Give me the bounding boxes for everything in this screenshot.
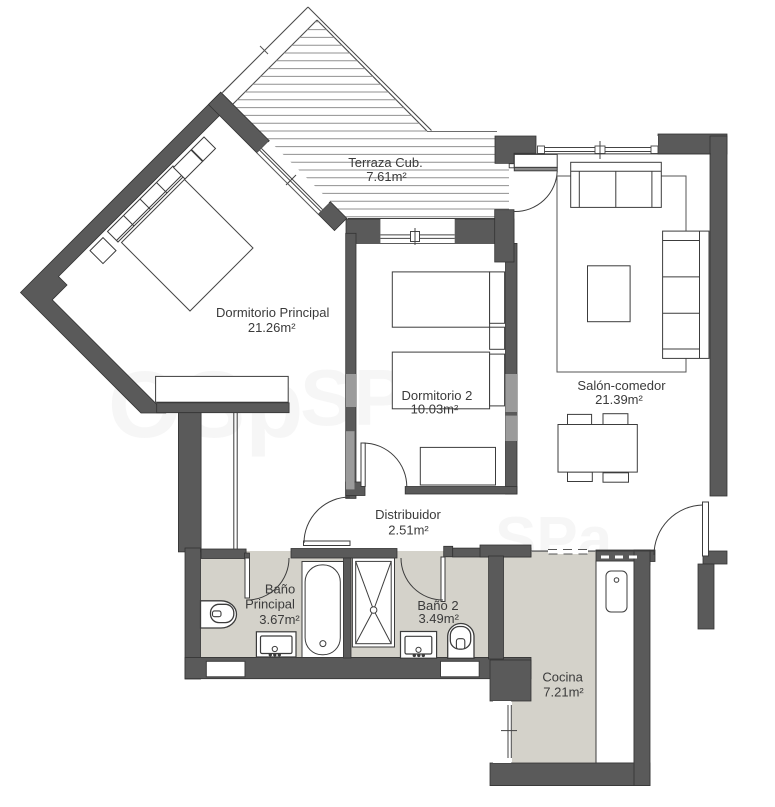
svg-text:Baño: Baño [265, 582, 295, 597]
svg-text:10.03m²: 10.03m² [411, 402, 459, 417]
svg-text:21.26m²: 21.26m² [248, 320, 296, 335]
svg-text:7.61m²: 7.61m² [366, 169, 407, 184]
svg-text:Distribuidor: Distribuidor [375, 507, 441, 522]
svg-text:3.49m²: 3.49m² [418, 611, 459, 626]
svg-text:21.39m²: 21.39m² [595, 392, 643, 407]
svg-text:2.51m²: 2.51m² [388, 523, 429, 538]
svg-text:Cocina: Cocina [542, 670, 583, 685]
svg-text:Dormitorio Principal: Dormitorio Principal [216, 305, 330, 320]
svg-text:Salón-comedor: Salón-comedor [577, 378, 666, 393]
svg-text:Terraza Cub.: Terraza Cub. [348, 155, 422, 170]
svg-text:7.21m²: 7.21m² [543, 685, 584, 700]
svg-text:3.67m²: 3.67m² [259, 612, 300, 627]
svg-text:Principal: Principal [245, 597, 295, 612]
